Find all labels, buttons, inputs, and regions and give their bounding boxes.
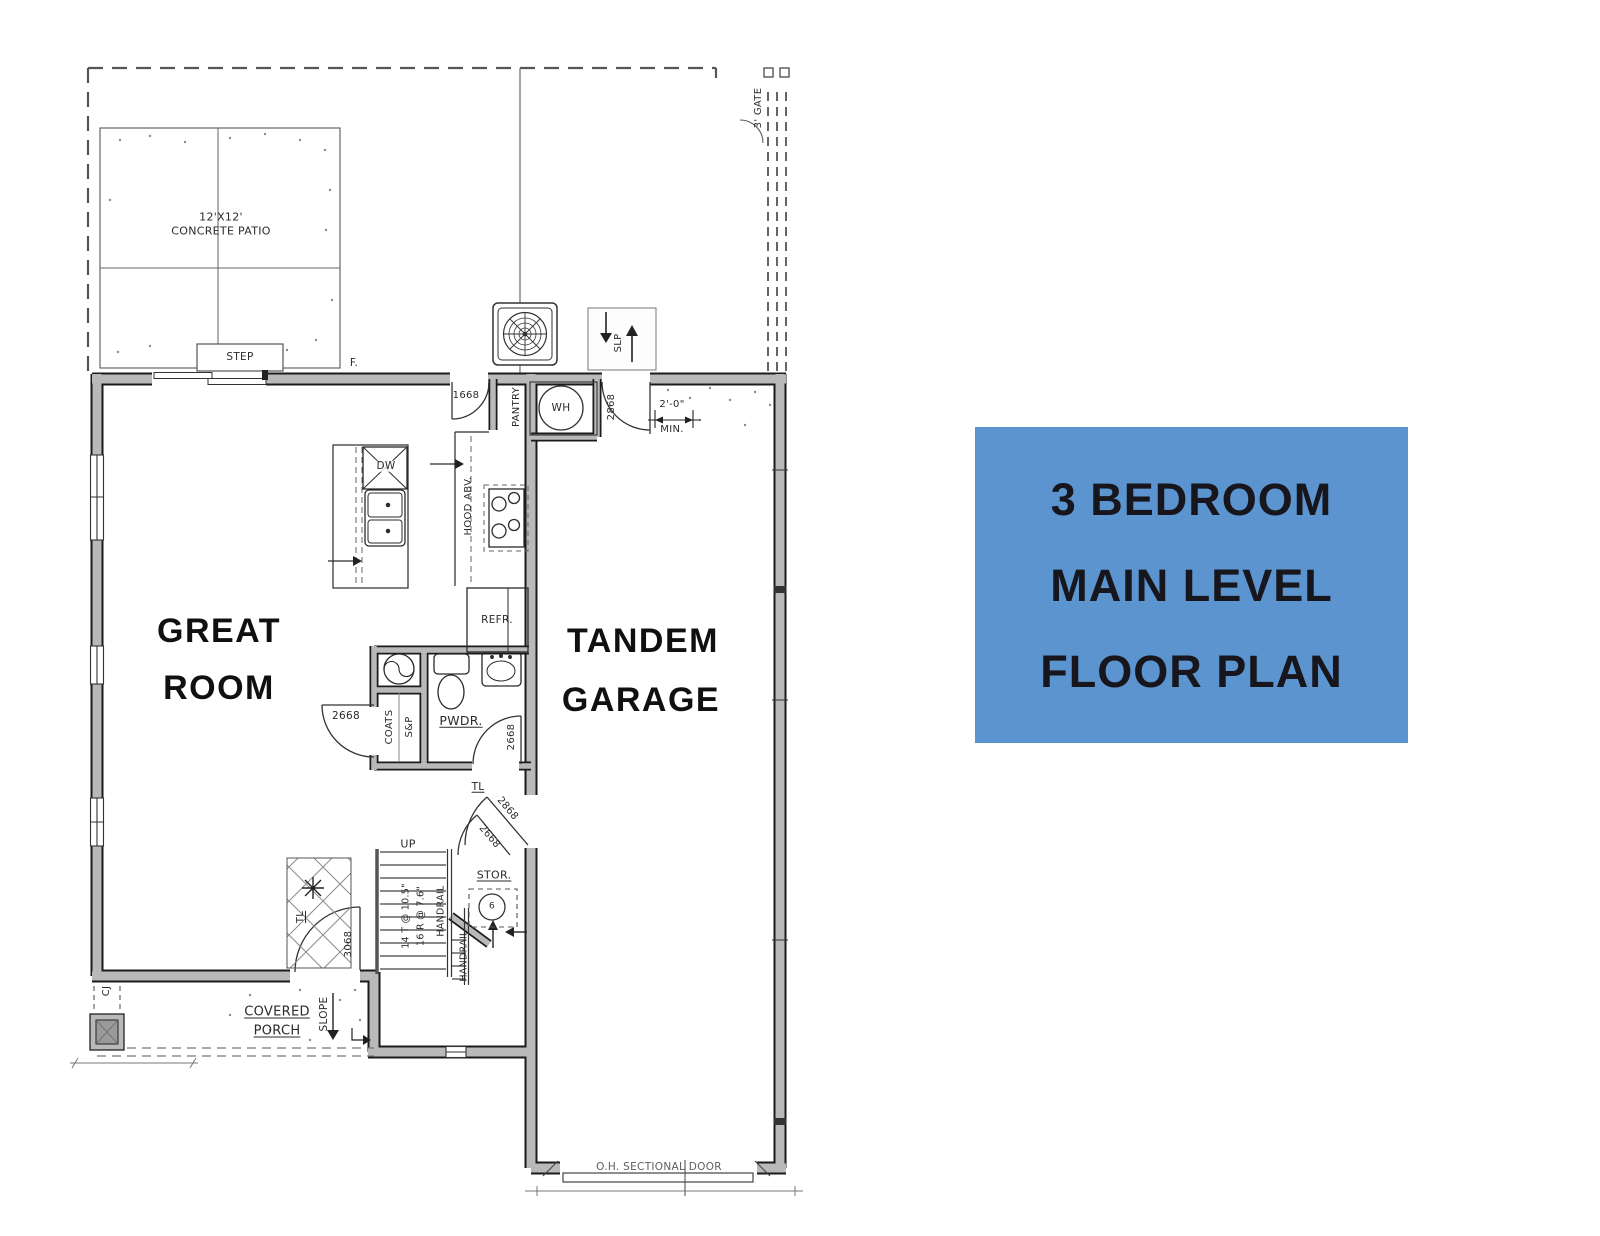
porch-column bbox=[90, 1014, 124, 1050]
dishwasher-label: DW bbox=[374, 461, 397, 472]
front-door-size: 3068 bbox=[344, 931, 354, 958]
concrete-patio bbox=[100, 128, 340, 368]
great-room-label-2: ROOM bbox=[163, 671, 275, 705]
coats-door-size: 2668 bbox=[332, 711, 360, 722]
entry-tile-label: TL bbox=[296, 911, 306, 923]
patio-label-name: CONCRETE PATIO bbox=[171, 226, 270, 237]
toilet-icon bbox=[434, 654, 469, 709]
handrail-label-1: HANDRAIL bbox=[436, 885, 446, 936]
storage-label: STOR. bbox=[477, 870, 512, 881]
great-room-label-1: GREAT bbox=[157, 614, 281, 648]
house-walls bbox=[92, 374, 786, 1168]
stoop-slope-label: SLP bbox=[614, 334, 624, 353]
vanity-sink-icon bbox=[482, 652, 521, 686]
cooktop-icon bbox=[484, 485, 528, 551]
patio-label-size: 12'X12' bbox=[199, 212, 243, 223]
overhead-door-label: O.H. SECTIONAL DOOR bbox=[596, 1162, 722, 1173]
sliding-door bbox=[154, 370, 268, 385]
shelf-pole-label: S&P bbox=[405, 716, 415, 737]
garage-entry-door-size: 2868 bbox=[607, 394, 617, 421]
porch-label-1: COVERED bbox=[244, 1006, 310, 1019]
windows bbox=[91, 455, 467, 1058]
porch-label-2: PORCH bbox=[254, 1025, 301, 1038]
gate-label: 3' GATE bbox=[754, 88, 764, 129]
floorplan-page: 12'X12' CONCRETE PATIO STEP F. 3' GATE S… bbox=[0, 0, 1600, 1236]
fence-gate bbox=[740, 68, 789, 371]
furnace-symbol-label: 6 bbox=[489, 903, 495, 912]
pantry-label: PANTRY bbox=[512, 387, 522, 427]
hall-tile-label: TL bbox=[472, 782, 485, 793]
garage-label-2: GARAGE bbox=[562, 683, 720, 717]
ceiling-light-icon bbox=[302, 877, 324, 899]
hood-label: HOOD ABV. bbox=[464, 477, 474, 536]
pantry-door-size: 1668 bbox=[453, 391, 480, 401]
porch-slope-label: SLOPE bbox=[319, 997, 330, 1032]
min-clearance-dim: 2'-0" bbox=[659, 400, 684, 410]
powder-room-label: PWDR. bbox=[439, 715, 482, 728]
washer-drain-icon bbox=[384, 654, 414, 684]
coats-label: COATS bbox=[385, 710, 395, 745]
stairs-up-label: UP bbox=[400, 839, 415, 850]
sink-icon bbox=[365, 490, 405, 546]
step-label: STEP bbox=[226, 352, 253, 363]
handrail-label-2: HANDRAIL bbox=[459, 930, 469, 981]
refrigerator-label: REFR. bbox=[481, 615, 513, 626]
garage-label-1: TANDEM bbox=[567, 624, 719, 658]
powder-door-size: 2668 bbox=[507, 724, 517, 751]
water-heater-label: WH bbox=[552, 403, 571, 414]
title-line-1: 3 BEDROOM bbox=[1051, 477, 1333, 522]
stairs-treads-note: 14 T @ 10.5" bbox=[401, 883, 411, 949]
title-line-3: FLOOR PLAN bbox=[1040, 649, 1342, 694]
footing-label: F. bbox=[350, 358, 358, 369]
control-joint-label: CJ bbox=[102, 986, 112, 997]
powder-room bbox=[384, 652, 521, 762]
min-clearance-label: MIN. bbox=[660, 425, 683, 435]
title-line-2: MAIN LEVEL bbox=[1050, 563, 1333, 608]
stairs-risers-note: 16 R @ 7.6" bbox=[416, 886, 426, 946]
title-card: 3 BEDROOM MAIN LEVEL FLOOR PLAN bbox=[975, 427, 1408, 743]
ac-condenser-fan-icon bbox=[493, 303, 557, 365]
